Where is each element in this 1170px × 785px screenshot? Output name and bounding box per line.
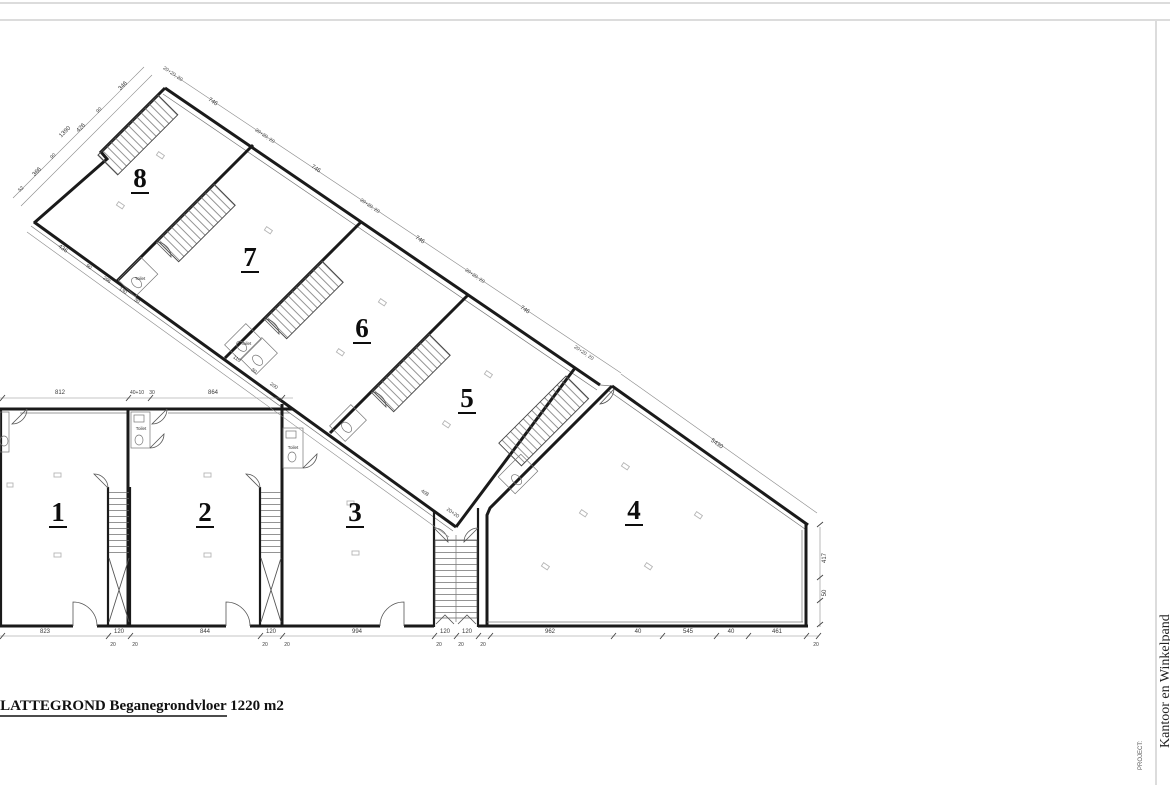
dim-text: 20+20, 20 bbox=[359, 197, 381, 215]
stair-central-shaft bbox=[434, 528, 478, 624]
toilet-label: Toilet bbox=[135, 276, 146, 281]
unit-5-label: 5 bbox=[460, 383, 474, 413]
dim-text: 962 bbox=[545, 629, 556, 635]
dim-text: 746 bbox=[310, 164, 322, 175]
dim-text: 746 bbox=[519, 305, 531, 316]
dim-text: 994 bbox=[352, 629, 363, 635]
dim-text: 40 bbox=[635, 629, 642, 635]
dim-text: 20 bbox=[458, 642, 464, 648]
dim-text: 110 bbox=[232, 354, 242, 364]
toilet-label: Toilet bbox=[288, 445, 299, 450]
dim-text: 90 bbox=[95, 106, 103, 114]
dim-text: 366 bbox=[32, 166, 44, 178]
dim-text: 812 bbox=[55, 390, 66, 396]
dim-text: 5430 bbox=[709, 438, 724, 451]
dim-text: 20+20, 20 bbox=[162, 65, 184, 83]
dim-text: 40+10 bbox=[130, 390, 144, 396]
dim-text: 20+20, 20 bbox=[254, 127, 276, 145]
toilet-room bbox=[330, 405, 367, 442]
dimension-wing-top: 20+20, 20 746 20+20, 20 746 20+20, 20 74… bbox=[162, 65, 817, 513]
dimension-right: 417 50 bbox=[817, 522, 828, 627]
dim-text: 864 bbox=[208, 390, 219, 396]
toilet-label: Toilet bbox=[136, 426, 147, 431]
dim-text: 346 bbox=[118, 80, 130, 92]
unit-4-label: 4 bbox=[627, 495, 641, 525]
dim-text: 120 bbox=[440, 629, 451, 635]
dim-text: 545 bbox=[683, 629, 694, 635]
dim-text: 426 bbox=[76, 122, 88, 134]
dim-text: 90 bbox=[49, 152, 57, 160]
dim-text: 844 bbox=[200, 629, 211, 635]
dim-text: 20+20, 20 bbox=[464, 267, 486, 285]
dim-text: 120 bbox=[114, 629, 125, 635]
stair-unit-2 bbox=[246, 474, 282, 625]
dim-text: 20 bbox=[132, 642, 138, 648]
unit-7-label: 7 bbox=[243, 242, 257, 272]
dim-text: 200 bbox=[268, 381, 278, 391]
dim-text: 746 bbox=[414, 235, 426, 246]
block-stairs bbox=[94, 474, 478, 625]
stair-unit-1 bbox=[94, 474, 130, 625]
dim-text: 1390 bbox=[58, 125, 72, 139]
sheet-title-block: Kantoor en Winkelpand PROJECT: bbox=[1138, 614, 1170, 770]
toilet-label: Toilet bbox=[241, 341, 252, 346]
dim-text: 30 bbox=[149, 390, 155, 396]
dim-text: 40 bbox=[728, 629, 735, 635]
project-name: Kantoor en Winkelpand bbox=[1158, 614, 1170, 748]
plan-title-block: PLATTEGROND Beganegrondvloer 1220 m2 bbox=[0, 698, 284, 716]
dim-text: 746 bbox=[207, 97, 219, 108]
unit-3-label: 3 bbox=[348, 497, 362, 527]
plan-title: PLATTEGROND Beganegrondvloer 1220 m2 bbox=[0, 698, 284, 714]
dim-text: 20 bbox=[480, 642, 486, 648]
unit-2-label: 2 bbox=[198, 497, 212, 527]
project-label: PROJECT: bbox=[1138, 741, 1144, 770]
block-toilets: Toilet Toilet bbox=[0, 412, 317, 468]
floor-plan-drawing: Toilet Toilet bbox=[0, 0, 1170, 785]
dim-text: 417 bbox=[822, 552, 828, 563]
dim-text: 120 bbox=[462, 629, 473, 635]
unit-6-label: 6 bbox=[355, 313, 369, 343]
dim-text: 408 bbox=[419, 488, 429, 498]
unit-8-label: 8 bbox=[133, 163, 147, 193]
unit-labels: 1 2 3 4 5 6 7 8 bbox=[49, 163, 643, 527]
dim-text: 20 bbox=[813, 642, 819, 648]
dim-text: 461 bbox=[772, 629, 783, 635]
dimension-top: 812 40+10 30 864 bbox=[0, 390, 293, 401]
dimension-bottom: 823 120 844 120 994 120 120 962 40 545 4… bbox=[0, 629, 821, 648]
dim-text: 20 bbox=[436, 642, 442, 648]
dim-text: 20 bbox=[284, 642, 290, 648]
unit-1-label: 1 bbox=[51, 497, 65, 527]
dim-text: 50 bbox=[822, 589, 828, 596]
dim-text: 20 bbox=[262, 642, 268, 648]
dim-text: 20+20 bbox=[445, 507, 460, 520]
sheet-frame bbox=[0, 3, 1170, 785]
dim-text: 120 bbox=[266, 629, 277, 635]
dim-text: 20 bbox=[110, 642, 116, 648]
dim-text: 823 bbox=[40, 629, 51, 635]
